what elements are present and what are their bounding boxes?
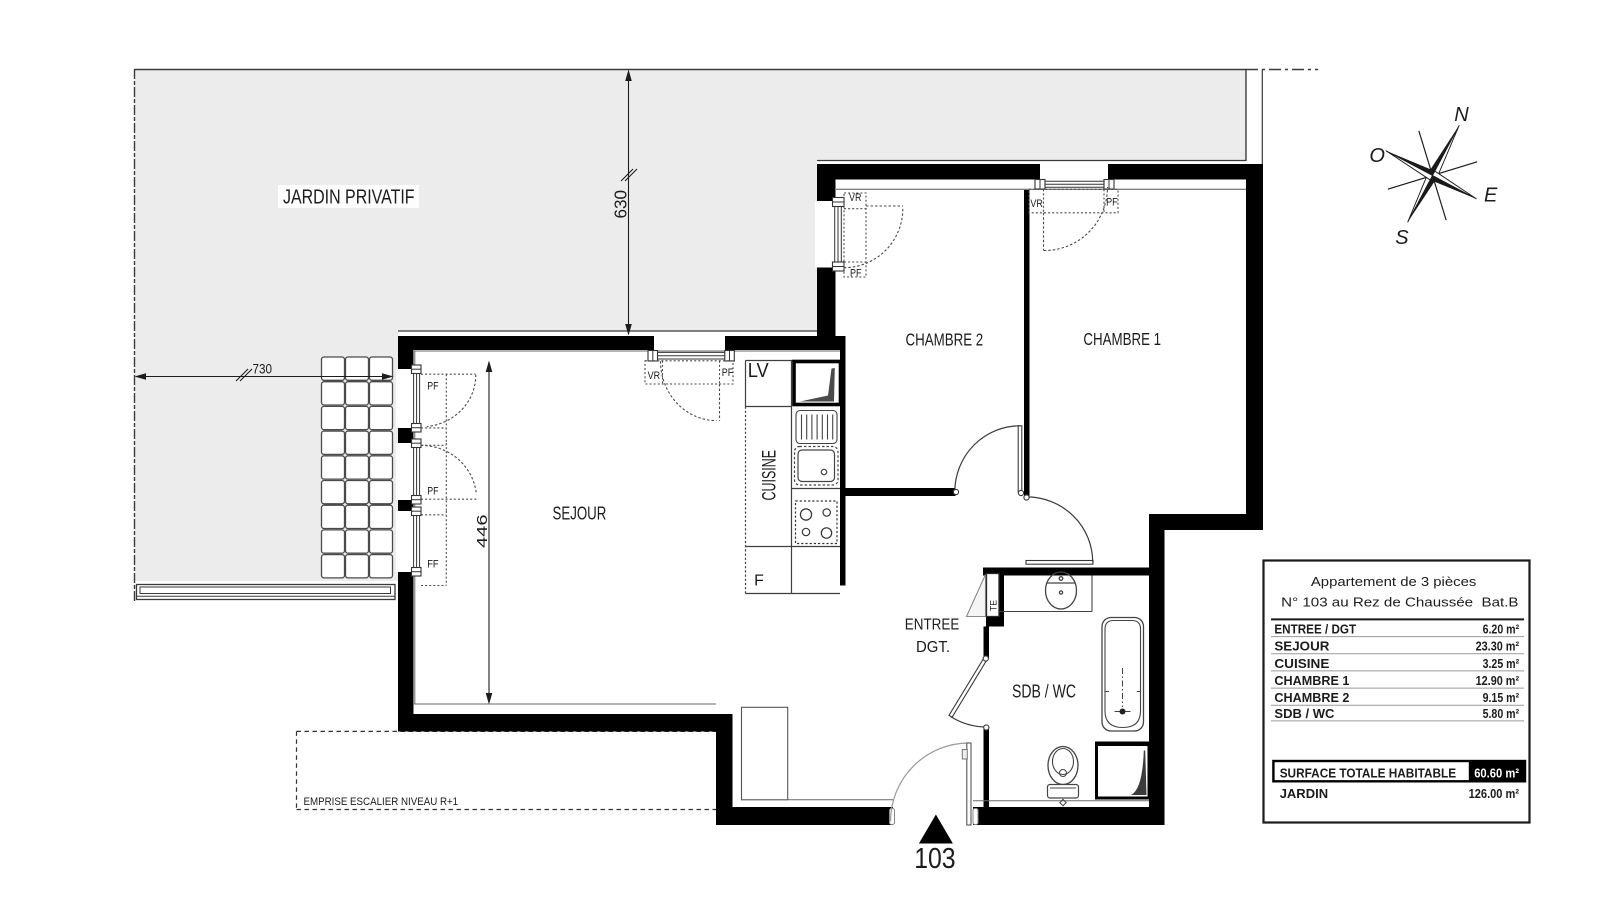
svg-text:VR: VR <box>849 192 862 204</box>
svg-text:630: 630 <box>611 190 631 219</box>
svg-text:PF: PF <box>722 367 734 379</box>
svg-text:23.30 m²: 23.30 m² <box>1476 639 1520 654</box>
svg-text:N: N <box>1454 104 1469 126</box>
svg-text:103: 103 <box>914 843 955 875</box>
svg-text:SDB / WC: SDB / WC <box>1012 680 1076 701</box>
svg-text:CHAMBRE 2: CHAMBRE 2 <box>906 329 984 349</box>
svg-text:ENTREE: ENTREE <box>905 617 960 634</box>
svg-text:N° 103 au Rez de Chaussée Bat: N° 103 au Rez de Chaussée Bat.B <box>1281 594 1519 609</box>
svg-text:VR: VR <box>1030 198 1043 210</box>
svg-text:60.60 m²: 60.60 m² <box>1474 765 1519 780</box>
svg-text:6.20 m²: 6.20 m² <box>1483 621 1520 636</box>
svg-text:PF: PF <box>427 486 439 498</box>
svg-text:5.80 m²: 5.80 m² <box>1483 706 1520 721</box>
svg-text:SDB / WC: SDB / WC <box>1274 706 1335 721</box>
svg-text:CUISINE: CUISINE <box>758 450 780 501</box>
svg-text:PF: PF <box>850 268 862 280</box>
svg-text:CUISINE: CUISINE <box>1274 656 1329 671</box>
svg-text:SURFACE TOTALE HABITABLE: SURFACE TOTALE HABITABLE <box>1280 765 1457 780</box>
svg-text:3.25 m²: 3.25 m² <box>1483 656 1520 671</box>
svg-text:PF: PF <box>427 381 439 393</box>
svg-text:VR: VR <box>648 370 661 382</box>
svg-text:SEJOUR: SEJOUR <box>553 502 607 523</box>
svg-text:LV: LV <box>748 360 769 382</box>
svg-text:ENTREE / DGT: ENTREE / DGT <box>1274 621 1356 636</box>
svg-text:CHAMBRE 1: CHAMBRE 1 <box>1274 673 1349 688</box>
svg-text:126.00 m²: 126.00 m² <box>1469 786 1520 801</box>
svg-text:EMPRISE ESCALIER NIVEAU R+1: EMPRISE ESCALIER NIVEAU R+1 <box>304 796 459 808</box>
svg-text:Appartement de 3 pièces: Appartement de 3 pièces <box>1311 574 1477 589</box>
svg-text:446: 446 <box>474 515 491 549</box>
svg-text:730: 730 <box>253 361 273 377</box>
svg-text:S: S <box>1395 227 1409 249</box>
svg-text:E: E <box>1484 184 1498 206</box>
svg-text:SEJOUR: SEJOUR <box>1274 639 1330 654</box>
svg-text:9.15 m²: 9.15 m² <box>1483 690 1520 705</box>
svg-text:F: F <box>754 572 764 589</box>
svg-text:FF: FF <box>427 559 439 571</box>
svg-text:DGT.: DGT. <box>916 639 950 656</box>
svg-text:O: O <box>1369 145 1385 167</box>
svg-text:CHAMBRE 2: CHAMBRE 2 <box>1274 690 1349 705</box>
svg-text:12.90 m²: 12.90 m² <box>1476 673 1520 688</box>
svg-text:JARDIN: JARDIN <box>1280 786 1328 801</box>
svg-text:JARDIN PRIVATIF: JARDIN PRIVATIF <box>283 187 415 209</box>
svg-text:PF: PF <box>1106 197 1118 209</box>
svg-text:CHAMBRE 1: CHAMBRE 1 <box>1083 329 1161 349</box>
svg-text:TE: TE <box>989 600 1000 611</box>
